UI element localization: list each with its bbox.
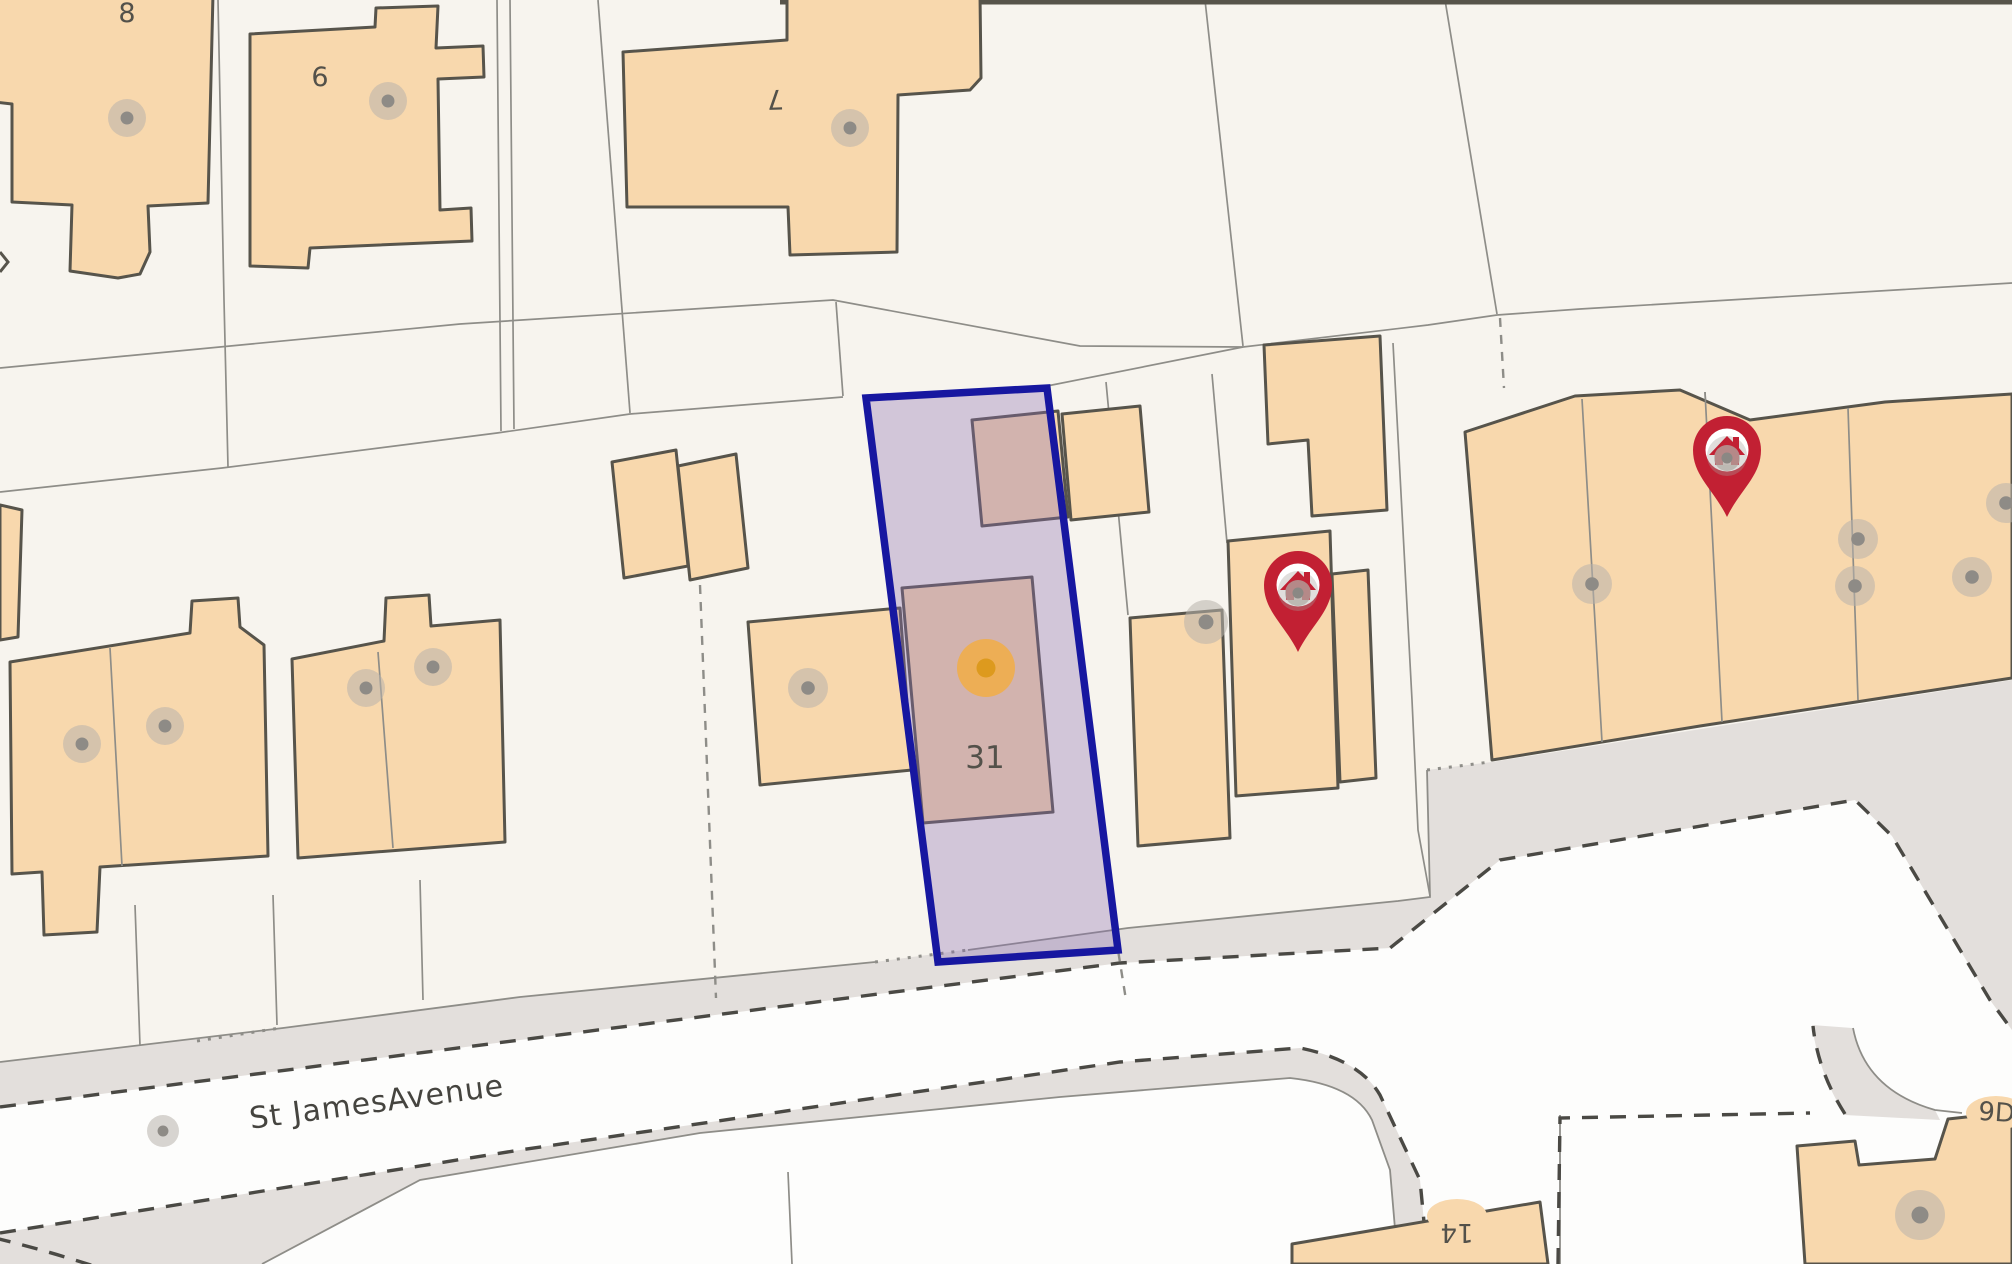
building-dot — [146, 707, 184, 745]
building-dot — [414, 648, 452, 686]
building-dot — [1572, 564, 1612, 604]
pin-dot-core — [1722, 453, 1733, 464]
building-dot — [63, 725, 101, 763]
plot-number-label: 8 — [118, 0, 135, 29]
map-canvas[interactable]: 86731149D St JamesAvenue — [0, 0, 2012, 1264]
plot-number-label: 31 — [965, 740, 1004, 776]
plot-number-label: 6 — [311, 62, 328, 93]
building-east-of-annex — [1062, 406, 1149, 520]
building-dot — [1895, 1190, 1945, 1240]
map-svg[interactable]: 86731149D St JamesAvenue — [0, 0, 2012, 1264]
building-dot — [147, 1115, 179, 1147]
building-dot — [347, 669, 385, 707]
pin1-building-right — [1332, 570, 1376, 782]
selected-plot-marker[interactable] — [957, 639, 1015, 697]
building-dot — [788, 668, 828, 708]
building-dot — [831, 109, 869, 147]
plot-number-label: 14 — [1440, 1217, 1473, 1247]
building-dot — [1838, 519, 1878, 559]
shed-1 — [612, 450, 688, 578]
front-building — [1130, 610, 1230, 846]
building-dot — [1184, 600, 1228, 644]
building-dot — [108, 99, 146, 137]
building-left-of-31 — [748, 608, 912, 785]
plot-number-label: 9D — [1977, 1097, 2012, 1129]
orange-marker-core — [977, 659, 996, 678]
building-dot — [1835, 566, 1875, 606]
pin-dot-core — [1293, 588, 1304, 599]
plot-number-label: 7 — [766, 83, 784, 115]
building-sliver-left — [0, 505, 22, 640]
building-dot — [369, 82, 407, 120]
shed-2 — [678, 454, 748, 580]
building-dot — [1952, 557, 1992, 597]
